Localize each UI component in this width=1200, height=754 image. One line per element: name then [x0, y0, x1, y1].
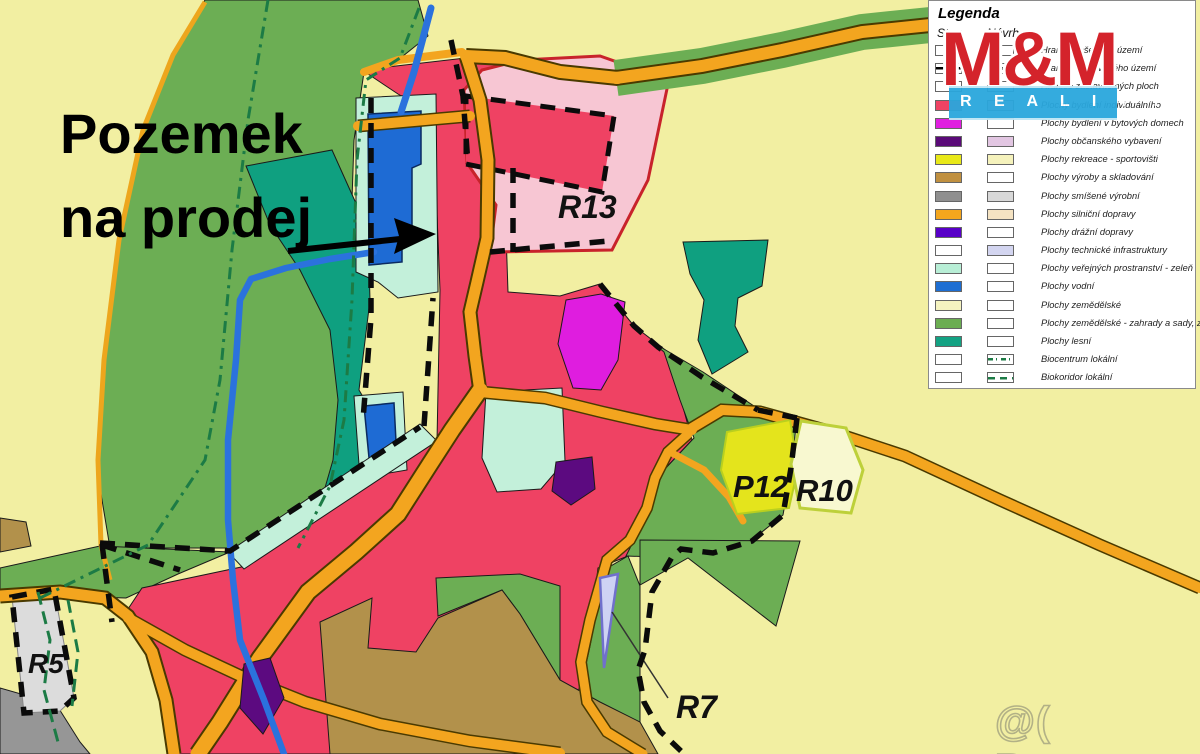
reality-bar: R E A L I T Y — [949, 86, 1117, 120]
legend-row: Plochy vodní — [929, 278, 1195, 296]
legend-row-label: Plochy zemědělské — [1041, 300, 1121, 310]
legend-swatch-stav — [935, 372, 962, 383]
legend-swatch-navrh — [987, 354, 1014, 365]
legend-row: Plochy občanského vybavení — [929, 133, 1195, 151]
legend-row-label: Biokoridor lokální — [1041, 372, 1112, 382]
mm-reality-logo: M&M R E A L I T Y — [941, 22, 1117, 98]
legend-swatch-stav — [935, 336, 962, 347]
label-r13: R13 — [558, 189, 617, 225]
legend-swatch-stav — [935, 227, 962, 238]
legend-swatch-navrh — [987, 209, 1014, 220]
legend-row-label: Plochy zemědělské - zahrady a sady, zele… — [1041, 318, 1200, 328]
legend-swatch-stav — [935, 209, 962, 220]
legend-swatch-stav — [935, 191, 962, 202]
legend-row: Plochy zemědělské — [929, 297, 1195, 315]
legend-row-label: Plochy drážní dopravy — [1041, 227, 1133, 237]
legend-row-label: Biocentrum lokální — [1041, 354, 1117, 364]
annotation-line1: Pozemek — [60, 92, 312, 176]
legend-row-label: Plochy výroby a skladování — [1041, 172, 1154, 182]
legend-swatch-navrh — [987, 172, 1014, 183]
legend-row: Plochy veřejných prostranství - zeleň — [929, 260, 1195, 278]
legend-row-label: Plochy lesní — [1041, 336, 1091, 346]
legend-row: Plochy drážní dopravy — [929, 224, 1195, 242]
annotation-pozemek-na-prodej: Pozemek na prodej — [60, 92, 312, 260]
label-r5: R5 — [28, 648, 64, 679]
legend-swatch-navrh — [987, 227, 1014, 238]
legend-row: Plochy technické infrastruktury — [929, 242, 1195, 260]
legend-swatch-stav — [935, 245, 962, 256]
legend-swatch-stav — [935, 136, 962, 147]
label-r10: R10 — [796, 473, 853, 508]
legend-row: Plochy zemědělské - zahrady a sady, zele… — [929, 315, 1195, 333]
label-r7: R7 — [676, 689, 719, 725]
legend-row-label: Plochy silniční dopravy — [1041, 209, 1136, 219]
legend-swatch-navrh — [987, 300, 1014, 311]
legend-row-label: Plochy vodní — [1041, 281, 1094, 291]
bazos-watermark: @( Bazos.cz — [995, 698, 1200, 754]
legend-swatch-navrh — [987, 372, 1014, 383]
zoning-map-screenshot: R13 P12 R10 R5 R7 Legenda Stav Návrh Hra… — [0, 0, 1200, 754]
legend-row: Biocentrum lokální — [929, 351, 1195, 369]
legend-row-label: Plochy smíšené výrobní — [1041, 191, 1140, 201]
legend-swatch-navrh — [987, 336, 1014, 347]
legend-swatch-stav — [935, 300, 962, 311]
annotation-line2: na prodej — [60, 176, 312, 260]
label-p12: P12 — [733, 469, 788, 504]
legend-swatch-navrh — [987, 318, 1014, 329]
legend-swatch-stav — [935, 318, 962, 329]
legend-row: Plochy výroby a skladování — [929, 169, 1195, 187]
region-brown-left — [0, 518, 31, 552]
legend-swatch-stav — [935, 263, 962, 274]
legend-swatch-stav — [935, 354, 962, 365]
legend-swatch-stav — [935, 281, 962, 292]
legend-row: Plochy rekreace - sportovišti — [929, 151, 1195, 169]
legend-row: Plochy smíšené výrobní — [929, 188, 1195, 206]
legend-row: Plochy lesní — [929, 333, 1195, 351]
reality-text: R E A L I T Y — [949, 88, 1117, 116]
legend-row-label: Plochy technické infrastruktury — [1041, 245, 1167, 255]
legend-swatch-stav — [935, 154, 962, 165]
legend-swatch-navrh — [987, 263, 1014, 274]
legend-swatch-navrh — [987, 245, 1014, 256]
legend-swatch-navrh — [987, 154, 1014, 165]
legend-row: Biokoridor lokální — [929, 369, 1195, 387]
legend-swatch-navrh — [987, 281, 1014, 292]
legend-swatch-navrh — [987, 136, 1014, 147]
legend-row-label: Plochy občanského vybavení — [1041, 136, 1161, 146]
legend-row: Plochy silniční dopravy — [929, 206, 1195, 224]
legend-row-label: Plochy rekreace - sportovišti — [1041, 154, 1158, 164]
legend-row-label: Plochy veřejných prostranství - zeleň — [1041, 263, 1193, 273]
legend-swatch-stav — [935, 172, 962, 183]
legend-swatch-navrh — [987, 191, 1014, 202]
